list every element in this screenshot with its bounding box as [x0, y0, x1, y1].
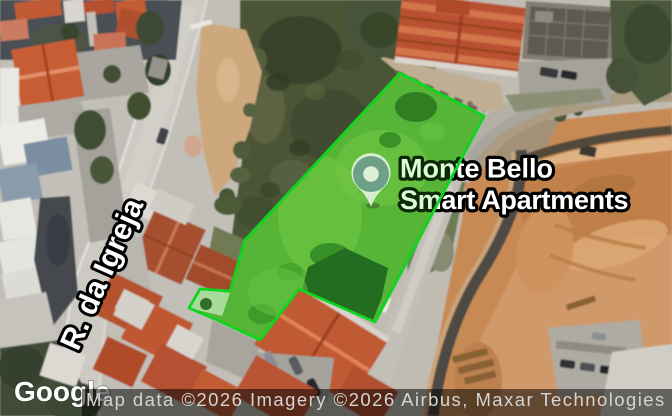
svg-text:Map data ©2026 Imagery ©2026 A: Map data ©2026 Imagery ©2026 Airbus, Max…: [86, 389, 666, 410]
